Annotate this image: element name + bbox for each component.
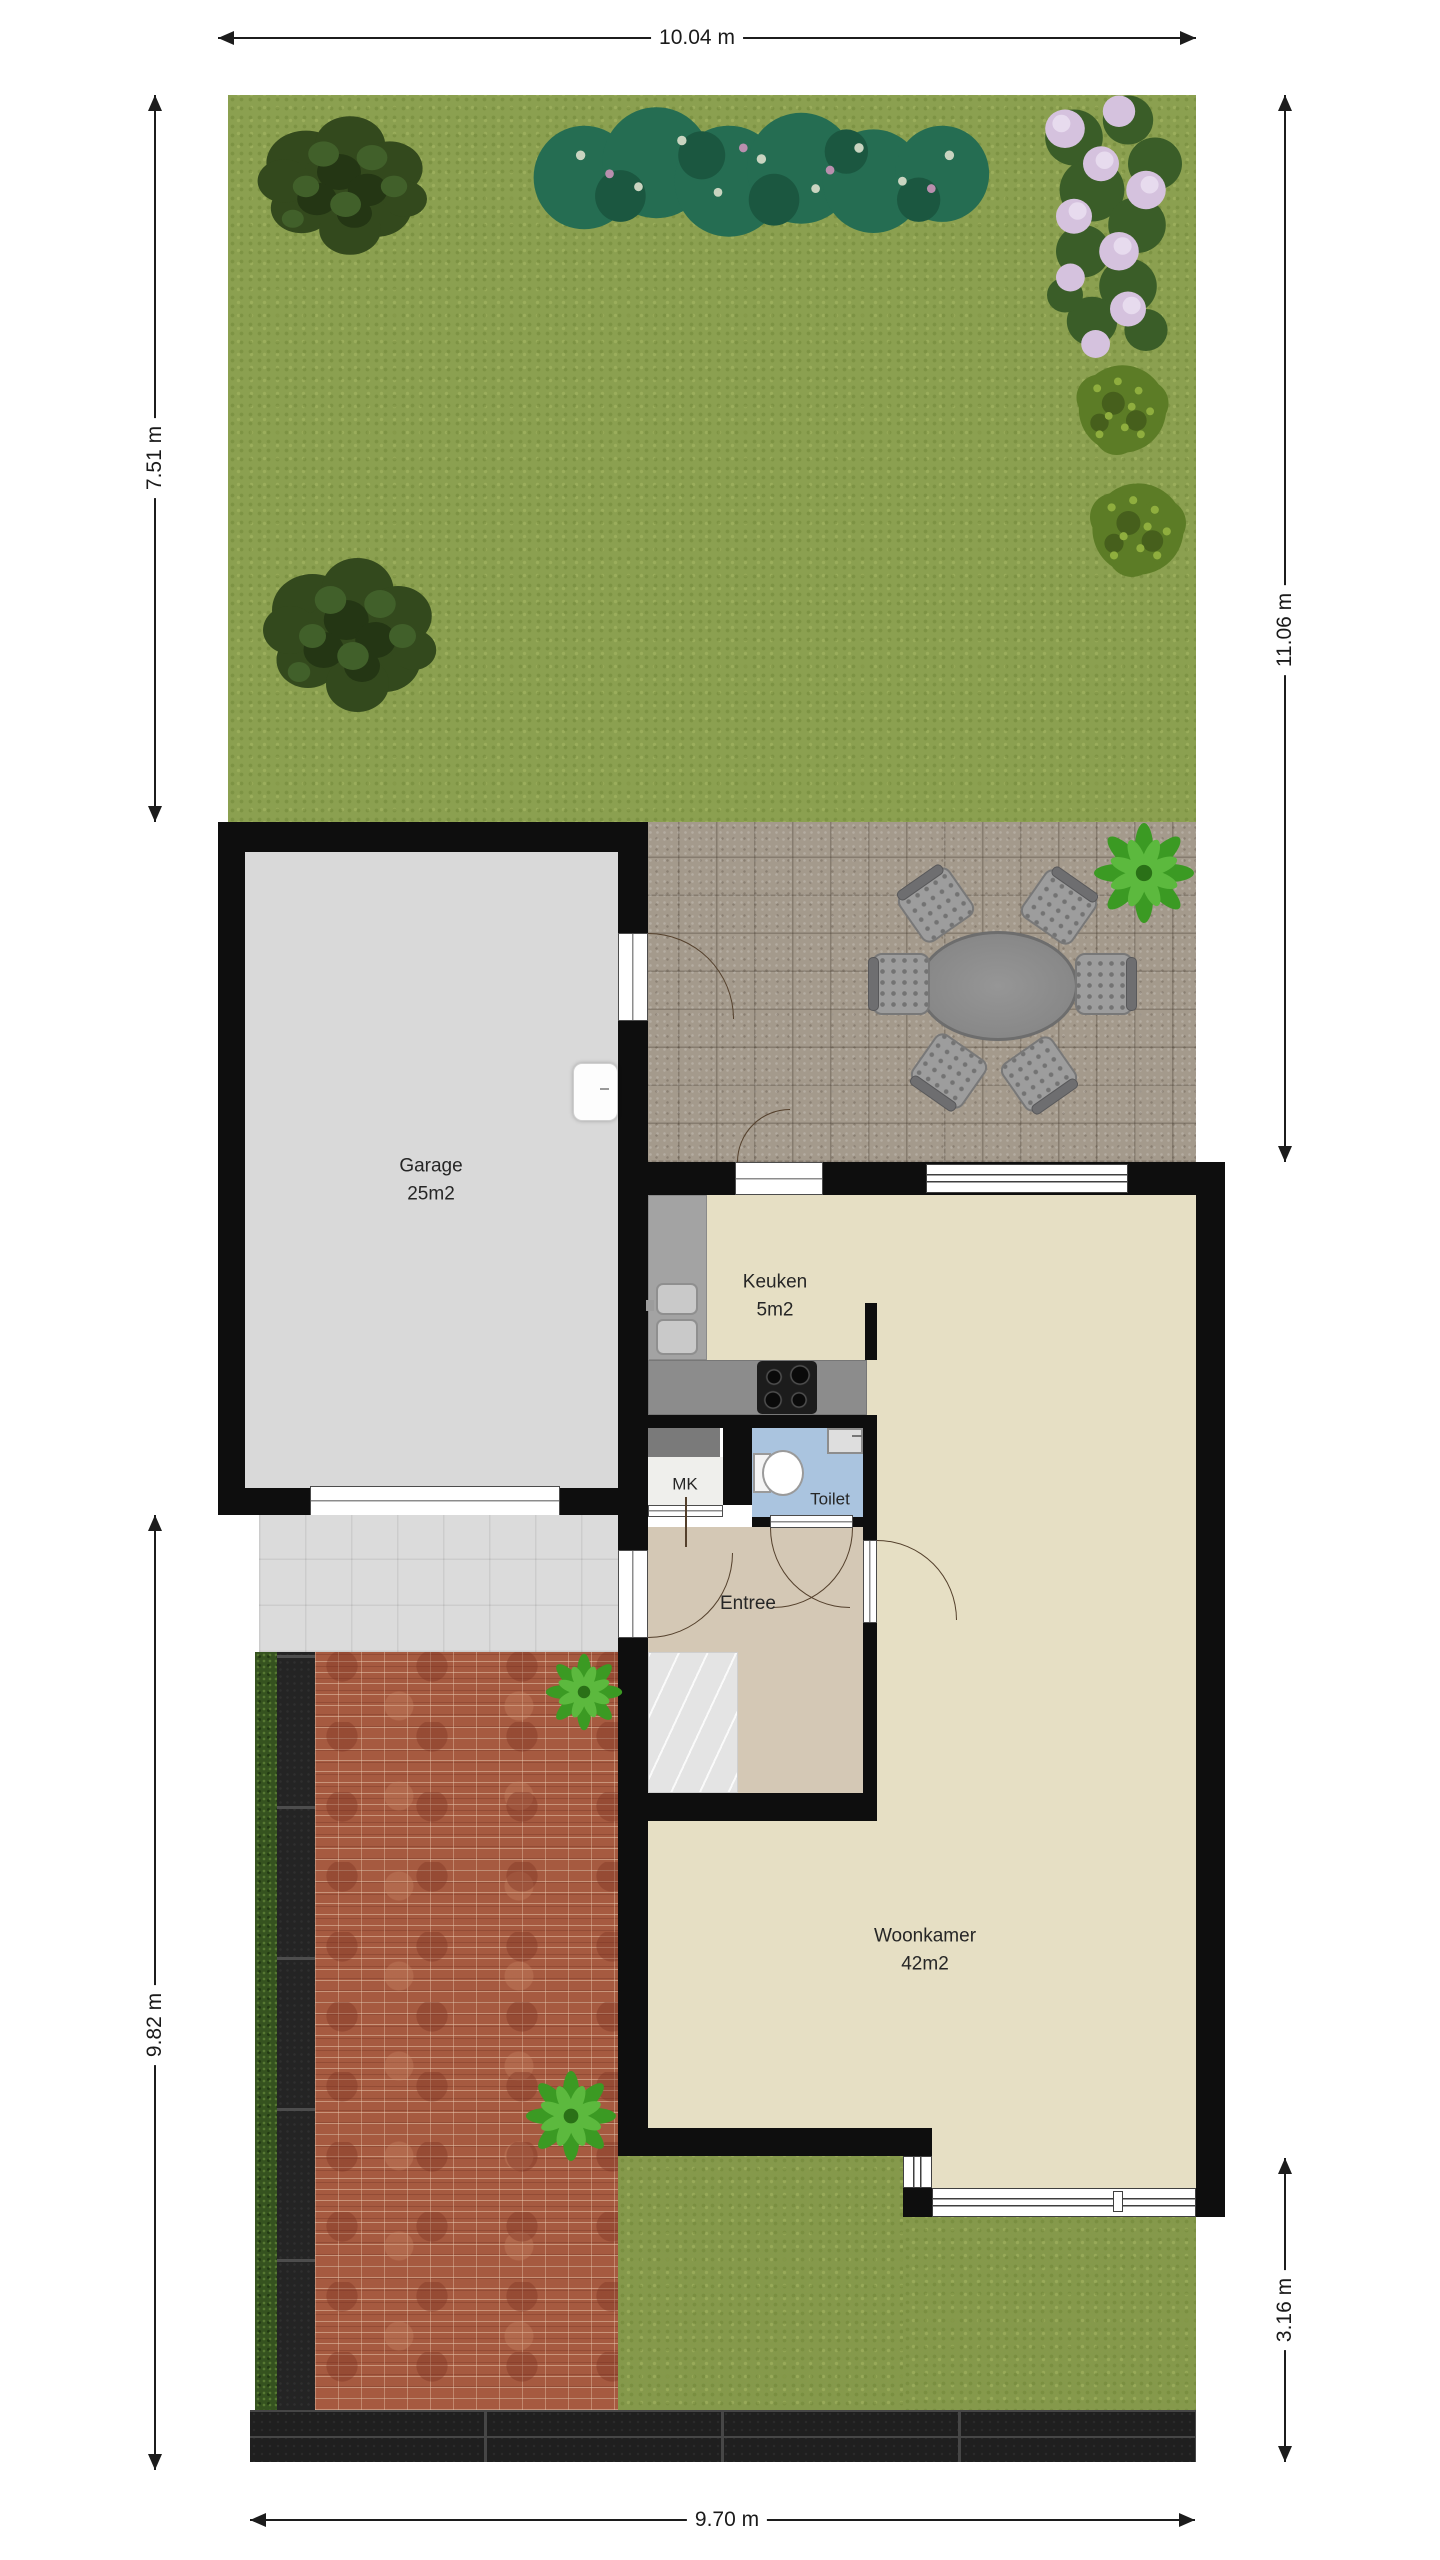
woonkamer-side-window (903, 2156, 932, 2188)
arrow-up-icon (148, 1515, 162, 1531)
window-post (1113, 2191, 1123, 2212)
room-area: 25m2 (399, 1180, 462, 1208)
kitchen-faucet-icon (646, 1300, 654, 1311)
wall-stub-keuken (865, 1303, 877, 1360)
plant-icon (525, 2068, 617, 2164)
bush-icon (1065, 350, 1180, 468)
road-strip (250, 2410, 1196, 2462)
woonkamer-floor (877, 1195, 1196, 2156)
entree-woonkamer-door (863, 1540, 877, 1623)
hedge-icon (530, 85, 1000, 270)
mk-label: MK (672, 1473, 698, 1498)
arrow-down-icon (148, 2454, 162, 2470)
room-name: Garage (399, 1152, 462, 1180)
room-name: MK (672, 1473, 698, 1498)
dim-label: 9.70 m (687, 2506, 767, 2534)
side-hedge (255, 1652, 277, 2410)
wall-entree-right (863, 1623, 877, 1793)
mk-door-leaf (685, 1497, 687, 1547)
mk-cupboard (648, 1428, 720, 1457)
stove-icon (757, 1361, 817, 1414)
woonkamer-floor-extension (928, 2156, 1196, 2188)
toilet-faucet-icon (852, 1435, 862, 1437)
arrow-right-icon (1180, 31, 1196, 45)
bush-icon (1078, 468, 1198, 590)
arrow-right-icon (1179, 2513, 1195, 2527)
arrow-left-icon (250, 2513, 266, 2527)
toilet-sink-icon (827, 1428, 863, 1454)
wall-keuken-bottom (648, 1415, 877, 1428)
arrow-down-icon (148, 806, 162, 822)
side-path (277, 1652, 315, 2410)
keuken-label: Keuken 5m2 (743, 1268, 807, 1323)
room-name: Keuken (743, 1268, 807, 1296)
entree-label: Entree (720, 1590, 776, 1618)
tree-icon (240, 100, 460, 280)
woonkamer-bottom-window (932, 2188, 1196, 2217)
front-grass (903, 2217, 1196, 2410)
toilet-door (770, 1515, 853, 1528)
garage-label: Garage 25m2 (399, 1152, 462, 1207)
room-name: Toilet (810, 1488, 850, 1513)
front-paving (259, 1515, 618, 1652)
dim-label: 9.82 m (141, 1985, 169, 2065)
room-area: 42m2 (874, 1950, 976, 1978)
room-name: Entree (720, 1590, 776, 1618)
arrow-up-icon (148, 95, 162, 111)
toilet-label: Toilet (810, 1488, 850, 1513)
kitchen-sink (656, 1319, 698, 1355)
patio-chair (1075, 953, 1133, 1015)
front-door (618, 1550, 648, 1638)
arrow-down-icon (1278, 2446, 1292, 2462)
plant-icon (1093, 820, 1195, 926)
dim-label: 3.16 m (1271, 2270, 1299, 2350)
arrow-up-icon (1278, 2158, 1292, 2174)
wall-mk-toilet (723, 1428, 752, 1505)
arrow-down-icon (1278, 1146, 1292, 1162)
woonkamer-label: Woonkamer 42m2 (874, 1922, 976, 1977)
arrow-up-icon (1278, 95, 1292, 111)
woonkamer-floor-left (648, 1821, 877, 2128)
floorplan-canvas: Garage 25m2 Keuken 5m2 Toilet MK Entree … (0, 0, 1440, 2560)
wall-entree-bottom (648, 1793, 877, 1821)
wall-step-corner (903, 2188, 932, 2217)
wall-woonkamer-bottom-left (618, 2128, 932, 2156)
patio-chair (872, 953, 930, 1015)
tree-icon (245, 540, 470, 740)
dim-label: 7.51 m (141, 418, 169, 498)
wall-toilet-right (863, 1415, 877, 1540)
front-grass (618, 2156, 903, 2410)
room-name: Woonkamer (874, 1922, 976, 1950)
plant-icon (545, 1650, 623, 1734)
dining-table (918, 931, 1078, 1041)
garage-fixture (573, 1063, 618, 1121)
room-area: 5m2 (743, 1296, 807, 1324)
arrow-left-icon (218, 31, 234, 45)
keuken-back-door (735, 1162, 823, 1195)
garage-fixture-mark (600, 1088, 609, 1090)
entree-stairs (648, 1652, 738, 1793)
woonkamer-top-window (926, 1164, 1128, 1193)
garage-side-door (618, 933, 648, 1021)
toilet-bowl-icon (762, 1450, 804, 1496)
kitchen-sink (656, 1283, 698, 1315)
brick-driveway (315, 1652, 618, 2410)
wall-house-right (1196, 1162, 1225, 2217)
garage-front-door (310, 1486, 560, 1516)
dim-label: 10.04 m (651, 24, 743, 52)
flowering-shrub-icon (1020, 85, 1200, 365)
dim-label: 11.06 m (1271, 585, 1299, 675)
